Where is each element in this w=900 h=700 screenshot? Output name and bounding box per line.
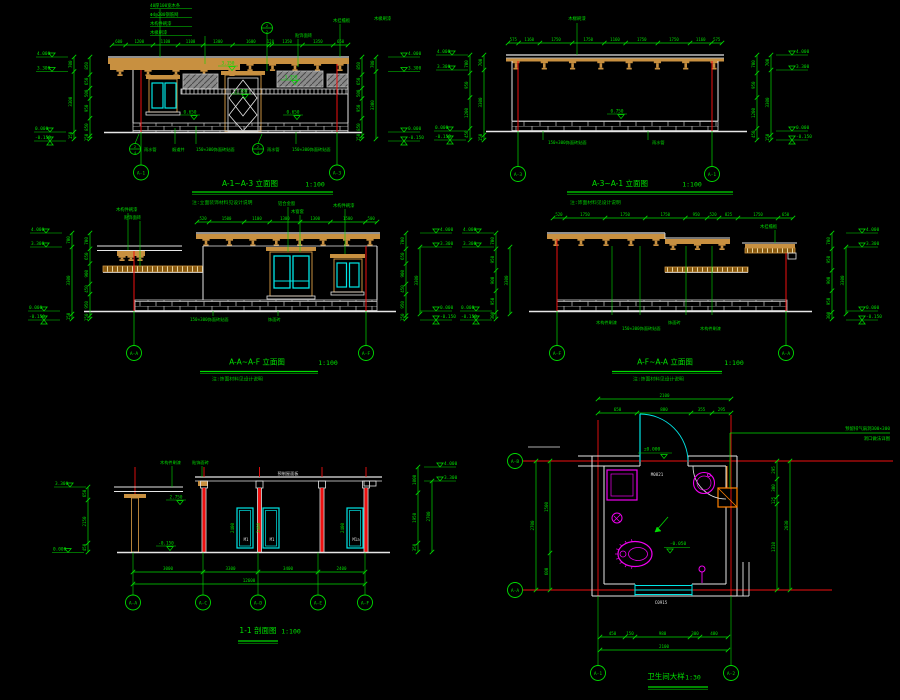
- brick-base: [512, 121, 718, 131]
- cad-line: [614, 515, 620, 521]
- cad-rect: [598, 68, 603, 70]
- cad-rect: [121, 258, 124, 260]
- dim-value: 150: [626, 631, 634, 636]
- level-value: 3.150: [222, 61, 235, 67]
- dim-value: 1500: [222, 216, 232, 221]
- dim-value: 1300: [310, 216, 320, 221]
- cad-rect: [695, 248, 700, 250]
- level-value: 0.000: [461, 305, 475, 311]
- dim-value: 950: [490, 255, 495, 263]
- bracket-icon: [710, 62, 717, 64]
- grid-bubble-label: A-F: [361, 600, 370, 606]
- level-triangle-icon: [433, 229, 439, 233]
- cad-rect: [117, 74, 122, 76]
- bracket-icon: [291, 64, 298, 66]
- dim-value: 3300: [225, 566, 236, 571]
- cad-rect: [322, 241, 325, 245]
- level-triangle-icon: [401, 68, 407, 72]
- dim-value: 950: [84, 104, 89, 112]
- annotation: 饰面砖: [268, 316, 281, 323]
- dim-value: 950: [826, 255, 831, 263]
- dim-value: 3300: [840, 275, 845, 286]
- dim-value: 3300: [66, 275, 71, 286]
- level-triangle-icon: [667, 549, 673, 553]
- cad-rect: [228, 241, 231, 245]
- level-value: 0.000: [435, 125, 449, 131]
- annotation: 木构件刷漆: [700, 325, 721, 332]
- corbel: [788, 253, 796, 259]
- dim-value: 450: [82, 543, 87, 551]
- cad-line: [620, 544, 622, 546]
- annotation: 150×300饰面砖贴面: [196, 146, 235, 153]
- dim-value: 700: [84, 237, 89, 245]
- cad-rect: [316, 66, 319, 70]
- level-value: 4.000: [440, 227, 454, 233]
- cad-rect: [110, 64, 240, 70]
- cad-rect: [580, 241, 583, 245]
- bracket-icon: [682, 62, 689, 64]
- dim-value: 295: [718, 407, 726, 412]
- level-value: 0.000: [35, 126, 49, 132]
- door-tag: M1a: [352, 537, 360, 542]
- grid-bubble-label: A-A: [782, 351, 791, 357]
- dim-value: 150: [68, 131, 73, 139]
- level-value: 4.000: [444, 461, 458, 467]
- dim-value: 1300: [213, 39, 223, 44]
- dim-value: 1200: [134, 39, 144, 44]
- cad-rect: [274, 256, 290, 288]
- level-value: 4.000: [463, 227, 477, 233]
- cad-rect: [653, 244, 658, 246]
- dim-value: 600: [544, 567, 549, 575]
- level-value: 3.300: [31, 241, 45, 247]
- annotation: 木挂檐板: [760, 223, 778, 230]
- cad-rect: [605, 241, 608, 245]
- pergola-beam: [745, 248, 795, 253]
- bracket-icon: [246, 64, 253, 66]
- pergola-beam: [103, 266, 203, 272]
- cad-rect: [628, 244, 633, 246]
- dim-value: 575: [713, 37, 721, 42]
- cad-rect: [247, 69, 252, 71]
- grid-bubble-label: A-A: [130, 351, 139, 357]
- title-section-1-1: 1-1 剖面图: [239, 625, 276, 635]
- capital: [124, 494, 146, 498]
- dim-value: 700: [400, 237, 405, 245]
- dim-value: 500: [368, 216, 376, 221]
- cad-rect: [542, 68, 547, 70]
- grid-bubble-label: A-B: [511, 459, 520, 465]
- note-elevation-aa-af: 注:饰面材料见设计说明: [212, 376, 263, 383]
- dim-value: 1750: [660, 212, 670, 217]
- dim-value: 650: [84, 77, 89, 85]
- level-value: 3.300: [866, 241, 880, 247]
- level-triangle-icon: [433, 316, 439, 320]
- level-triangle-icon: [473, 320, 479, 324]
- dim-value: 700: [751, 60, 756, 68]
- level-triangle-icon: [447, 140, 453, 144]
- level-value: 3.300: [444, 475, 458, 481]
- annotation: 预留排气扇洞300×300: [845, 425, 890, 432]
- dim-value: 1000: [412, 474, 417, 485]
- dim-value: 350: [412, 543, 417, 551]
- annotation: 150×300饰面砖贴面: [548, 139, 587, 146]
- door-tag: M1: [270, 537, 275, 542]
- bracket-icon: [552, 239, 559, 241]
- cad-label: 2: [257, 144, 259, 149]
- bracket-icon: [269, 64, 276, 66]
- bracket-icon: [314, 64, 321, 66]
- dim-value: 2150: [82, 516, 87, 527]
- dim-value: 950: [400, 301, 405, 309]
- dim-value: 450: [751, 130, 756, 138]
- level-value: -0.150: [440, 314, 456, 320]
- cad-rect: [337, 69, 342, 71]
- level-value: -0.050: [670, 541, 687, 547]
- cad-rect: [656, 63, 659, 68]
- level-triangle-icon: [167, 547, 173, 551]
- dim-value: 900: [84, 269, 89, 277]
- column-section: [203, 488, 206, 552]
- cad-label: 2: [266, 23, 268, 28]
- bracket-icon: [577, 239, 584, 241]
- bracket-icon: [320, 239, 327, 241]
- dim-value: 2700: [426, 511, 431, 522]
- penma-band: [183, 74, 218, 89]
- level-triangle-icon: [47, 141, 53, 145]
- note-elevation-af-aa: 注:饰面材料见设计说明: [633, 376, 684, 383]
- cad-label: 2: [134, 144, 136, 149]
- annotation: 洞口做法详图: [864, 435, 891, 442]
- annotation: 150×300饰面砖贴面: [292, 146, 331, 153]
- cad-rect: [165, 83, 176, 108]
- cad-rect: [252, 241, 255, 245]
- dim-value: 950: [490, 297, 495, 305]
- grid-bubble-label: A-2: [727, 671, 736, 677]
- annotation: 木窗套: [291, 208, 305, 215]
- bracket-icon: [597, 62, 604, 64]
- dim-value: 125: [771, 496, 776, 504]
- level-triangle-icon: [789, 136, 795, 140]
- grid-bubble-label: A-A: [129, 600, 138, 606]
- level-value: -0.150: [866, 314, 882, 320]
- grid-bubble-label: A-F: [553, 351, 562, 357]
- annotation: 木构件刷漆: [333, 202, 355, 209]
- bracket-icon: [273, 239, 280, 241]
- bracket-icon: [118, 256, 125, 258]
- dim-value: 3400: [283, 566, 294, 571]
- level-value: 0.000: [866, 305, 880, 311]
- door-tag: M1: [244, 537, 249, 542]
- annotation: 木构件刷漆: [160, 459, 181, 466]
- annotation: 木构件刷漆: [116, 206, 138, 213]
- dim-value: 900: [826, 276, 831, 284]
- level-value: 2.780: [235, 89, 248, 95]
- dim-value: 1600: [246, 39, 256, 44]
- dim-value: 1310: [771, 541, 776, 552]
- cad-rect: [683, 68, 688, 70]
- brick-base: [135, 300, 377, 311]
- dim-value: 1750: [551, 37, 561, 42]
- cad-rect: [719, 248, 724, 250]
- scale-elevation-af-aa: 1:100: [724, 359, 744, 367]
- level-value: 4.000: [437, 49, 451, 55]
- level-value: 3.300: [440, 241, 454, 247]
- dim-value: 150: [765, 133, 770, 141]
- dim-value: 1750: [583, 37, 593, 42]
- level-triangle-icon: [789, 127, 795, 131]
- level-value: 0.650: [184, 110, 197, 116]
- level-triangle-icon: [401, 53, 407, 57]
- bracket-icon: [627, 239, 634, 241]
- dim-value: 880: [660, 407, 668, 412]
- cad-rect: [225, 75, 261, 131]
- section-1-1: 预制屋面板2.750-0.150木构件刷漆贴饰面砖2400M12400M1240…: [52, 459, 458, 643]
- bracket-icon: [512, 62, 519, 64]
- dim-value: 150: [478, 133, 483, 141]
- level-triangle-icon: [789, 140, 795, 144]
- bracket-icon: [202, 239, 209, 241]
- bracket-icon: [343, 239, 350, 241]
- dim-value: 950: [693, 212, 701, 217]
- drawing-canvas[interactable]: A-1A-33.1502.7803.3500.6500.65040厚100宽木条…: [0, 0, 900, 700]
- bracket-icon: [626, 62, 633, 64]
- dim-value: 650: [82, 489, 87, 497]
- cad-rect: [655, 241, 658, 245]
- cad-rect: [578, 244, 583, 246]
- cad-rect: [128, 259, 133, 261]
- cad-line: [135, 134, 139, 144]
- cad-line: [616, 549, 619, 550]
- dim-value: 650: [356, 77, 361, 85]
- level-value: 0.000: [440, 305, 454, 311]
- dim-value: 950: [751, 81, 756, 89]
- arrowhead-icon: [655, 527, 661, 532]
- level-value: 2.750: [170, 495, 183, 501]
- dim-value: 150: [84, 133, 89, 141]
- dim-value: 355: [698, 407, 706, 412]
- cad-rect: [337, 263, 347, 287]
- dim-value: 480: [710, 631, 718, 636]
- annotation: 雨水管: [144, 146, 157, 153]
- cad-rect: [345, 241, 348, 245]
- cad-viewport[interactable]: A-1A-33.1502.7803.3500.6500.65040厚100宽木条…: [0, 0, 900, 700]
- dim-value: 3300: [370, 100, 375, 111]
- level-triangle-icon: [789, 66, 795, 70]
- level-triangle-icon: [294, 116, 300, 120]
- level-value: 3.350: [285, 75, 298, 81]
- dim-value: 1100: [252, 216, 262, 221]
- dim-value: 520: [555, 212, 563, 217]
- annotation: 150×300饰面砖贴面: [190, 316, 229, 323]
- column-section: [365, 488, 368, 552]
- elevation-a3-a1: 0.750A-3A-1木椽刷漆5751160175017501160175017…: [434, 15, 812, 194]
- cad-rect: [611, 474, 633, 496]
- counter-arc: [693, 466, 726, 499]
- level-value: 3.300: [796, 64, 810, 70]
- annotation: 木构件刷漆: [596, 319, 617, 326]
- dim-value: 900: [400, 269, 405, 277]
- dim-value: 575: [510, 37, 518, 42]
- level-value: 4.000: [408, 51, 422, 57]
- dim-value: 650: [782, 212, 790, 217]
- dim-value: 520: [199, 216, 207, 221]
- level-triangle-icon: [859, 307, 865, 311]
- annotation: Φ4@200钢筋网: [150, 11, 178, 18]
- level-value: -0.150: [35, 135, 51, 141]
- level-triangle-icon: [401, 137, 407, 141]
- level-value: 4.000: [37, 51, 51, 57]
- annotation: 烟道井: [172, 146, 185, 153]
- dim-value: 700: [826, 237, 831, 245]
- drawing-titles: A-1~A-3 立面图 1:100 注:立面装饰材料见设计说明 A-3~A-1 …: [192, 178, 744, 682]
- annotation: 木椽刷漆: [374, 15, 392, 22]
- level-triangle-icon: [433, 243, 439, 247]
- annotation: 40厚100宽木条: [150, 2, 181, 9]
- bracket-icon: [366, 239, 373, 241]
- column-section: [258, 488, 261, 552]
- cad-rect: [570, 68, 575, 70]
- dim-value: 450: [84, 285, 89, 293]
- dim-value: 3300: [68, 96, 73, 107]
- cad-line: [620, 562, 622, 564]
- level-triangle-icon: [401, 141, 407, 145]
- beam-section: [256, 481, 263, 488]
- bracket-icon: [144, 70, 151, 72]
- dim-value: 2700: [530, 520, 535, 531]
- dim-value: 1100: [161, 39, 171, 44]
- dim-value: 2400: [256, 522, 261, 533]
- dim-value: 650: [337, 39, 345, 44]
- dim-value: 1950: [412, 512, 417, 523]
- dim-value: 950: [826, 297, 831, 305]
- cad-rect: [198, 481, 208, 486]
- dim-value: 850: [84, 123, 89, 131]
- cad-rect: [221, 71, 265, 75]
- bracket-icon: [200, 70, 207, 72]
- dim-value: 1160: [610, 37, 620, 42]
- level-triangle-icon: [859, 320, 865, 324]
- dim-value: 1300: [280, 216, 290, 221]
- dim-value: 1200: [464, 107, 469, 118]
- cad-rect: [350, 263, 360, 287]
- cad-rect: [628, 63, 631, 68]
- dim-value: 12600: [243, 578, 256, 583]
- cad-rect: [205, 241, 208, 245]
- level-triangle-icon: [859, 243, 865, 247]
- corbel: [364, 481, 376, 486]
- dim-value: 950: [84, 301, 89, 309]
- shower-tray: [607, 470, 637, 500]
- dim-value: 1200: [751, 107, 756, 118]
- dim-value: 2400: [336, 566, 347, 571]
- dim-value: 1100: [186, 39, 196, 44]
- grid-bubble-label: A-C: [199, 600, 208, 606]
- level-value: 3.300: [408, 66, 422, 72]
- beam-section: [319, 481, 326, 488]
- cad-rect: [713, 63, 716, 68]
- cad-circle: [697, 476, 711, 490]
- title-elevation-a1-a3: A-1~A-3 立面图: [222, 178, 278, 188]
- parapet-band: [181, 89, 348, 94]
- annotation: 贴饰面砖: [192, 459, 209, 466]
- dim-value: 700: [370, 60, 375, 68]
- dim-value: 295: [771, 466, 776, 474]
- level-value: 4.000: [796, 49, 810, 55]
- dim-value: 700: [478, 58, 483, 66]
- dim-value: 850: [84, 62, 89, 70]
- cad-rect: [684, 63, 687, 68]
- cad-rect: [147, 72, 150, 75]
- cad-rect: [175, 72, 178, 75]
- dim-value: 1750: [637, 37, 647, 42]
- dim-value: 2100: [659, 644, 670, 649]
- dim-value: 950: [464, 81, 469, 89]
- dim-value: 850: [356, 123, 361, 131]
- cad-line: [258, 134, 262, 144]
- cad-rect: [745, 244, 795, 248]
- dim-value: 450: [609, 631, 617, 636]
- title-elevation-a3-a1: A-3~A-1 立面图: [592, 178, 648, 188]
- level-triangle-icon: [437, 463, 443, 467]
- dim-value: 1500: [544, 501, 549, 512]
- dim-value: 450: [400, 285, 405, 293]
- cleanout: [699, 566, 705, 572]
- level-triangle-icon: [401, 128, 407, 132]
- level-value: 3.300: [463, 241, 477, 247]
- cad-rect: [672, 246, 675, 249]
- cad-rect: [146, 75, 180, 79]
- annotation: 贴饰面砖: [295, 32, 313, 39]
- cad-rect: [506, 59, 724, 62]
- bathroom-plan: C0915预留排气扇洞300×300洞口做法详图±0.000M0821-0.05…: [508, 393, 894, 689]
- dim-value: 3000: [163, 566, 174, 571]
- dim-value: 700: [765, 58, 770, 66]
- scale-elevation-a3-a1: 1:100: [682, 181, 702, 189]
- dim-value: 700: [464, 60, 469, 68]
- title-elevation-af-aa: A-F~A-A 立面图: [637, 357, 693, 367]
- dim-value: 650: [614, 407, 622, 412]
- scale-bathroom-plan: 1:30: [685, 674, 701, 682]
- level-triangle-icon: [177, 501, 183, 505]
- dim-value: 1350: [313, 39, 323, 44]
- cad-rect: [553, 244, 558, 246]
- cad-rect: [369, 241, 372, 245]
- grid-bubble-label: A-E: [314, 600, 323, 606]
- cad-rect: [270, 252, 312, 296]
- annotation: 150×300饰面砖贴面: [622, 325, 661, 332]
- level-value: -0.150: [408, 135, 424, 141]
- dim-value: 300: [691, 631, 699, 636]
- annotation: 饰面砖: [668, 319, 681, 326]
- level-triangle-icon: [433, 307, 439, 311]
- level-triangle-icon: [661, 455, 667, 459]
- bracket-icon: [249, 239, 256, 241]
- dim-value: 700: [66, 236, 71, 244]
- level-value: -0.150: [435, 134, 451, 140]
- annotation: 木椽刷漆: [568, 15, 586, 22]
- level-value: 4.000: [31, 227, 45, 233]
- annotation: 雨水管: [652, 139, 665, 146]
- level-value: -0.150: [158, 541, 174, 547]
- bracket-icon: [654, 62, 661, 64]
- dim-value: 300: [826, 311, 831, 319]
- dim-value: 150: [84, 313, 89, 321]
- level-triangle-icon: [618, 115, 624, 119]
- dim-value: 150: [400, 313, 405, 321]
- cad-rect: [696, 246, 699, 249]
- dim-value: 500: [356, 89, 361, 97]
